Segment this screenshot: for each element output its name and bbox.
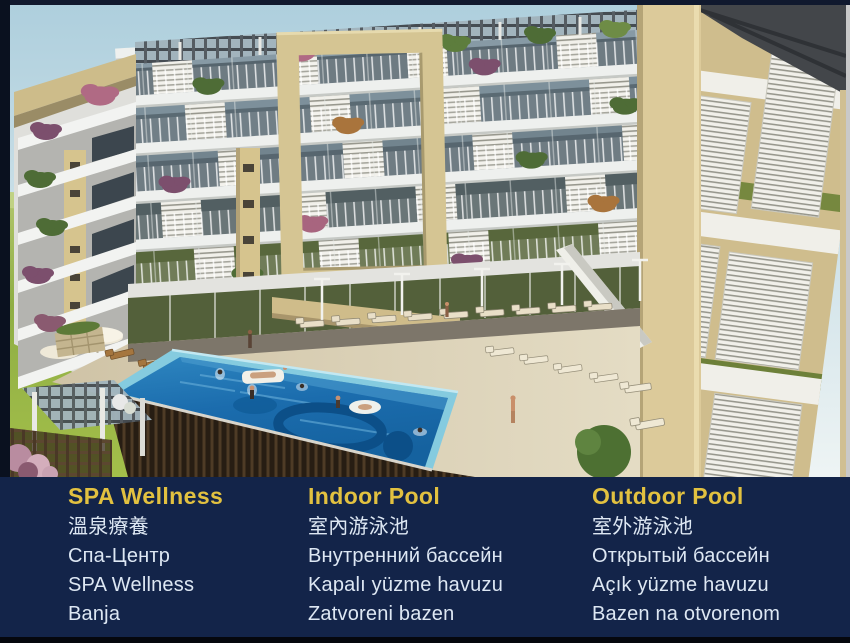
frame-border-left bbox=[0, 0, 10, 477]
spa-line-en: SPA Wellness bbox=[68, 571, 293, 600]
caption-column-indoor-pool: Indoor Pool 室內游泳池 Внутренний бассейн Kap… bbox=[308, 483, 583, 629]
spa-line-zh: 溫泉療養 bbox=[68, 513, 293, 542]
right-wing bbox=[626, 5, 846, 477]
indoor-pool-heading: Indoor Pool bbox=[308, 483, 583, 510]
outdoor-line-hr: Bazen na otvorenom bbox=[592, 600, 847, 629]
outdoor-line-zh: 室外游泳池 bbox=[592, 513, 847, 542]
caption-column-spa: SPA Wellness 溫泉療養 Спа-Центр SPA Wellness… bbox=[68, 483, 293, 629]
outdoor-pool-heading: Outdoor Pool bbox=[592, 483, 847, 510]
spa-wellness-heading: SPA Wellness bbox=[68, 483, 293, 510]
outdoor-line-tr: Açık yüzme havuzu bbox=[592, 571, 847, 600]
indoor-line-zh: 室內游泳池 bbox=[308, 513, 583, 542]
brochure-slide: SPA Wellness 溫泉療養 Спа-Центр SPA Wellness… bbox=[0, 0, 850, 643]
caption-column-outdoor-pool: Outdoor Pool 室外游泳池 Открытый бассейн Açık… bbox=[592, 483, 847, 629]
caption-panel: SPA Wellness 溫泉療養 Спа-Центр SPA Wellness… bbox=[0, 477, 850, 637]
indoor-line-hr: Zatvoreni bazen bbox=[308, 600, 583, 629]
frame-border-bottom bbox=[0, 637, 850, 643]
frame-border-right bbox=[846, 5, 850, 477]
building-render-image bbox=[10, 5, 846, 477]
outdoor-line-ru: Открытый бассейн bbox=[592, 542, 847, 571]
indoor-line-tr: Kapalı yüzme havuzu bbox=[308, 571, 583, 600]
beige-pillar bbox=[637, 5, 701, 477]
spa-line-hr: Banja bbox=[68, 600, 293, 629]
spa-line-ru: Спа-Центр bbox=[68, 542, 293, 571]
frame-border-top bbox=[0, 0, 850, 5]
indoor-line-ru: Внутренний бассейн bbox=[308, 542, 583, 571]
